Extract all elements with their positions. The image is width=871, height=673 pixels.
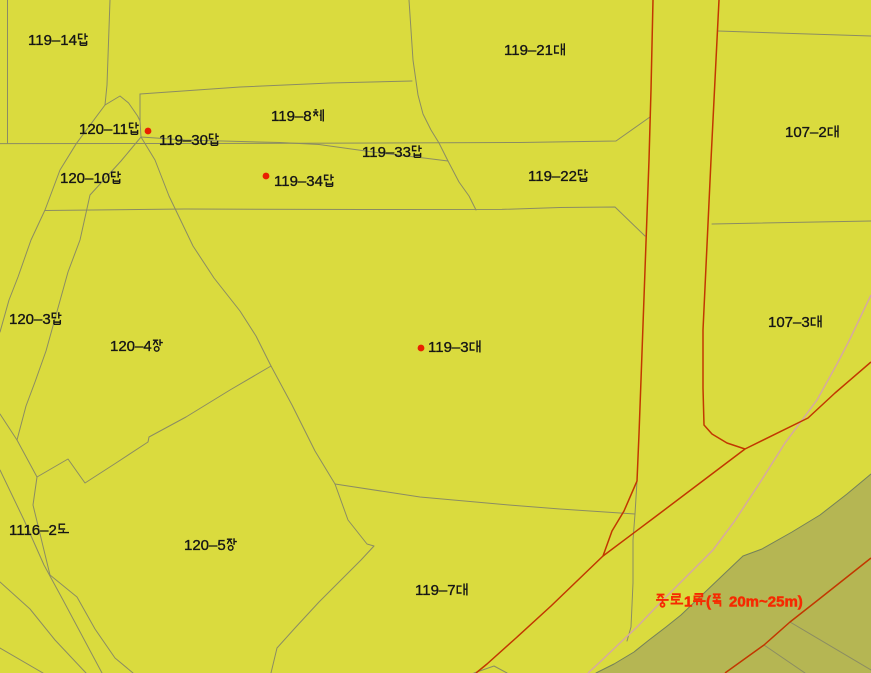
- svg-text:107–2: 107–2: [785, 124, 827, 141]
- svg-text:119–34: 119–34: [274, 173, 323, 190]
- svg-text:119–30: 119–30: [159, 132, 208, 149]
- svg-text:120–3: 120–3: [9, 311, 51, 328]
- svg-text:119–22: 119–22: [528, 168, 577, 185]
- svg-text:120–11: 120–11: [79, 121, 128, 138]
- svg-text:119–14: 119–14: [28, 32, 77, 49]
- svg-text:120–5: 120–5: [184, 537, 226, 554]
- svg-text:107–3: 107–3: [768, 314, 810, 331]
- svg-text:1: 1: [684, 594, 692, 611]
- svg-text:120–10: 120–10: [60, 170, 110, 187]
- svg-text:119–33: 119–33: [362, 144, 411, 161]
- svg-text:120–4: 120–4: [110, 338, 152, 355]
- svg-text:119–21: 119–21: [504, 42, 553, 59]
- svg-text:20m~25m): 20m~25m): [729, 594, 803, 611]
- svg-text:1116–2: 1116–2: [9, 522, 57, 539]
- svg-text:(: (: [706, 594, 711, 611]
- svg-text:119–3: 119–3: [428, 339, 469, 356]
- svg-text:119–8: 119–8: [271, 108, 312, 125]
- svg-text:119–7: 119–7: [415, 582, 456, 599]
